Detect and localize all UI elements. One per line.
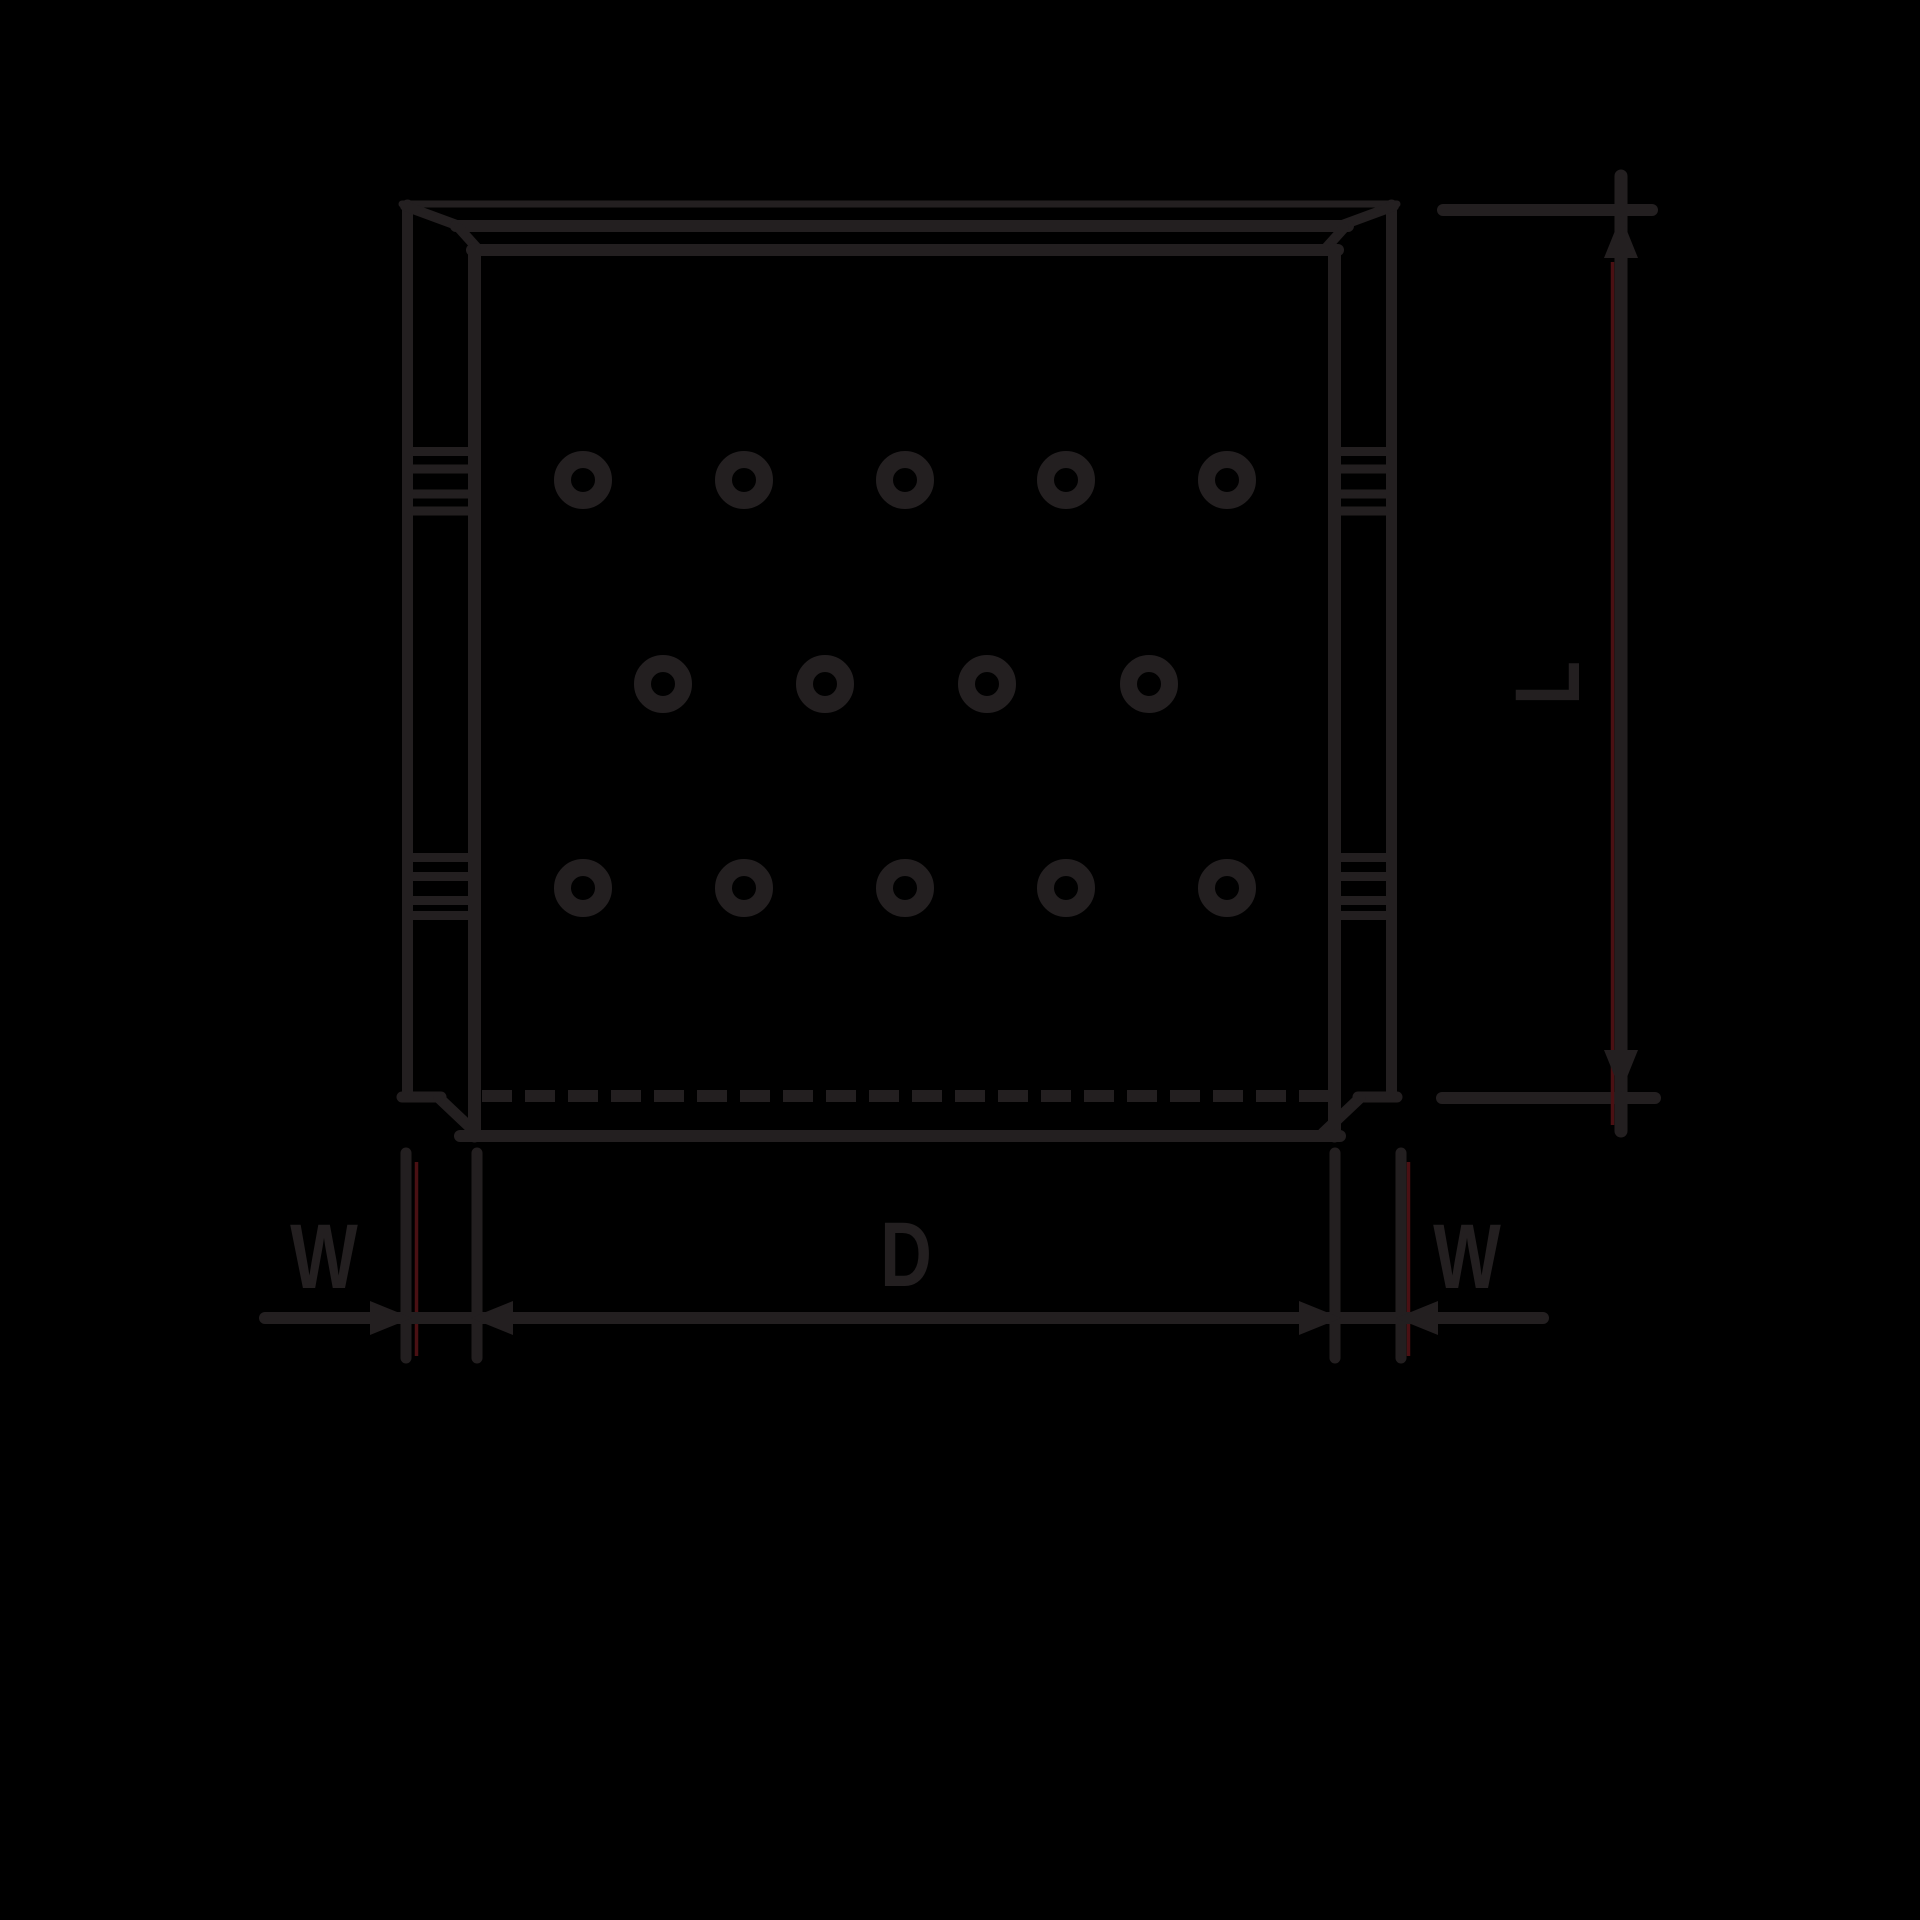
hole bbox=[1046, 460, 1087, 501]
arrowhead-down bbox=[1604, 1050, 1638, 1092]
hole bbox=[643, 664, 684, 705]
hole bbox=[885, 868, 926, 909]
length-dimension: L bbox=[1442, 176, 1655, 1131]
canvas: W D W L bbox=[0, 0, 1920, 1920]
wall-groove-ticks bbox=[406, 452, 1393, 916]
hole bbox=[885, 460, 926, 501]
hole bbox=[563, 868, 604, 909]
hole bbox=[724, 868, 765, 909]
hole bbox=[1207, 868, 1248, 909]
label-length: L bbox=[1497, 661, 1600, 705]
label-wall-right: W bbox=[1433, 1205, 1501, 1308]
perforation-holes bbox=[563, 460, 1248, 909]
hole bbox=[563, 460, 604, 501]
hole bbox=[724, 460, 765, 501]
technical-drawing: W D W L bbox=[0, 0, 1920, 1920]
label-inner-diameter: D bbox=[880, 1203, 932, 1306]
hole bbox=[1207, 460, 1248, 501]
hole bbox=[1046, 868, 1087, 909]
bottom-dimensions: W D W bbox=[265, 1153, 1543, 1358]
bushing-outline bbox=[402, 204, 1397, 1136]
label-wall-left: W bbox=[290, 1205, 358, 1308]
arrowhead-up bbox=[1604, 216, 1638, 258]
hole bbox=[967, 664, 1008, 705]
hole bbox=[1129, 664, 1170, 705]
hole bbox=[805, 664, 846, 705]
